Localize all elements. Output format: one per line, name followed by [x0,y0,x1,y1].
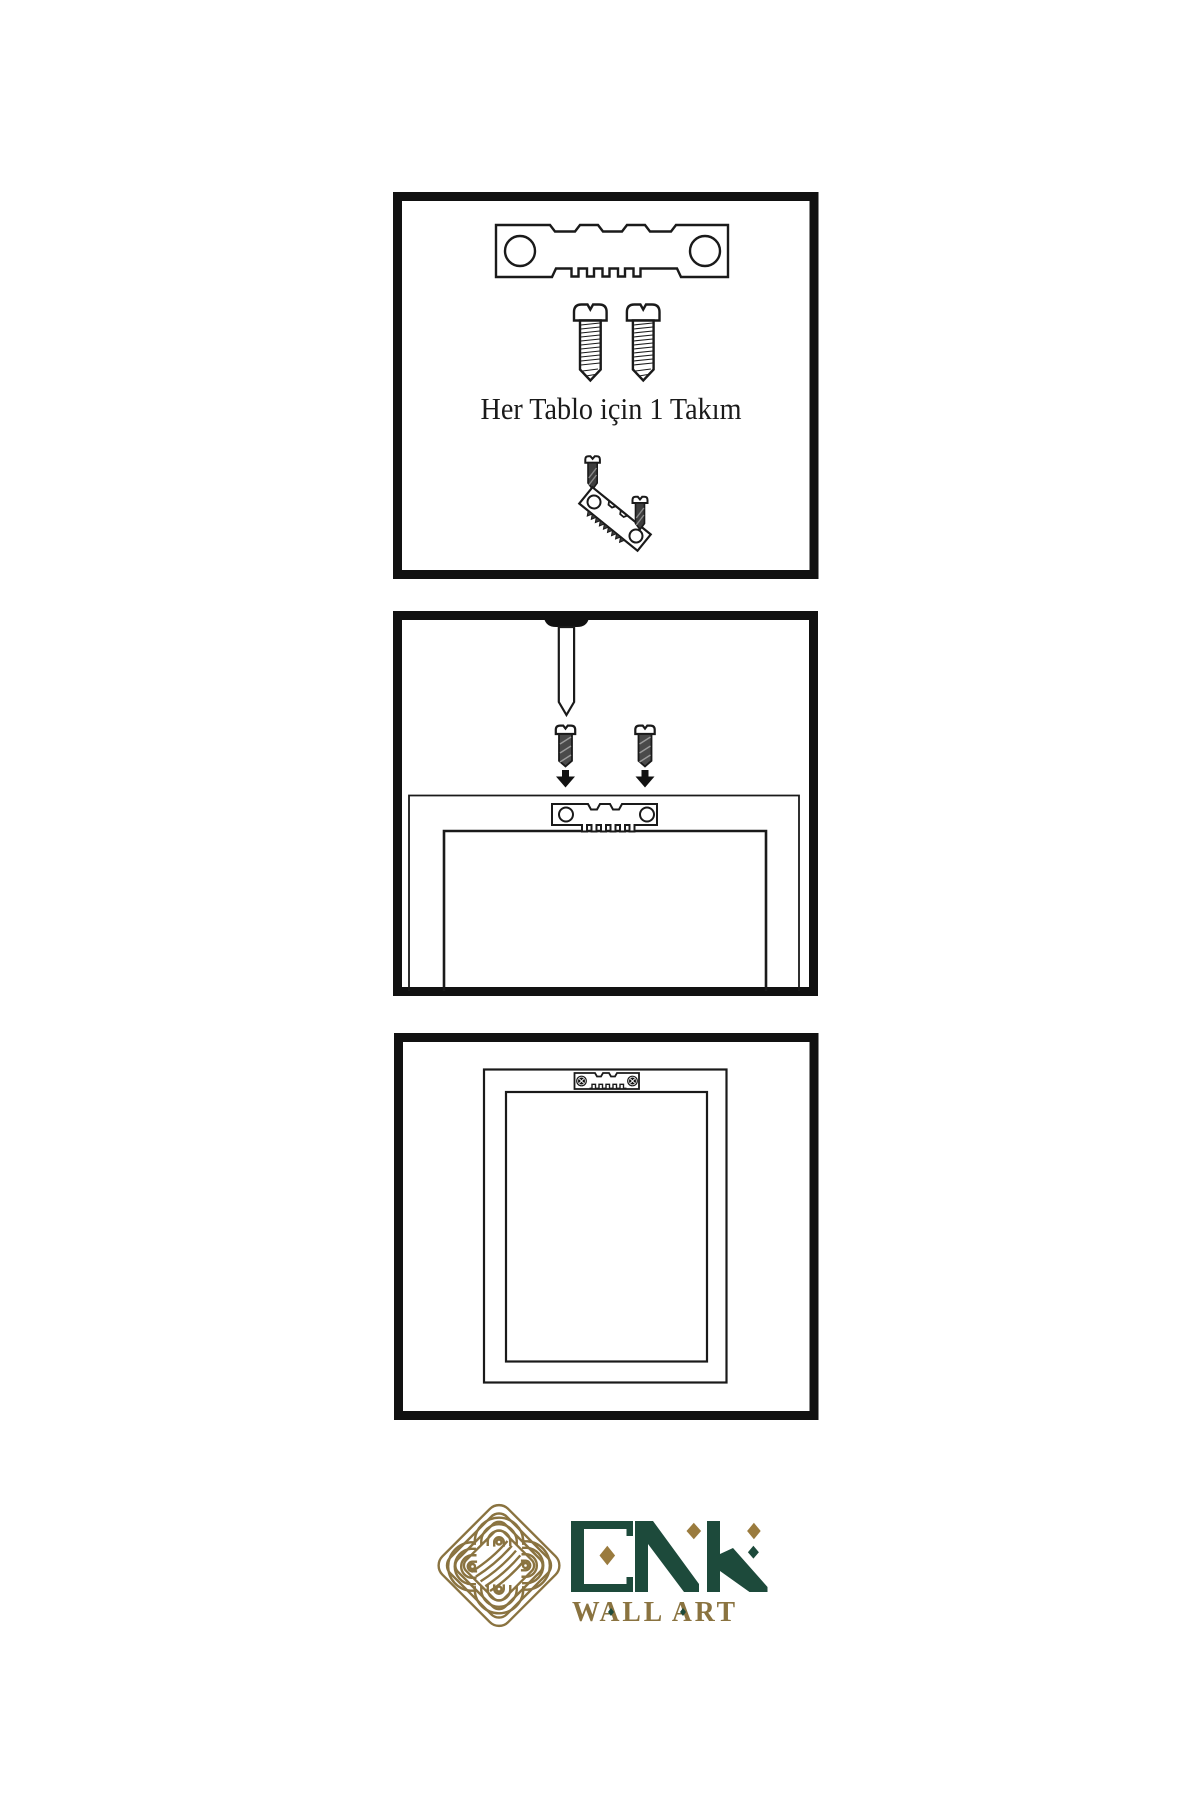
svg-text:WALL ART: WALL ART [572,1597,738,1628]
svg-text:Her Tablo için 1 Takım: Her Tablo için 1 Takım [481,391,742,426]
